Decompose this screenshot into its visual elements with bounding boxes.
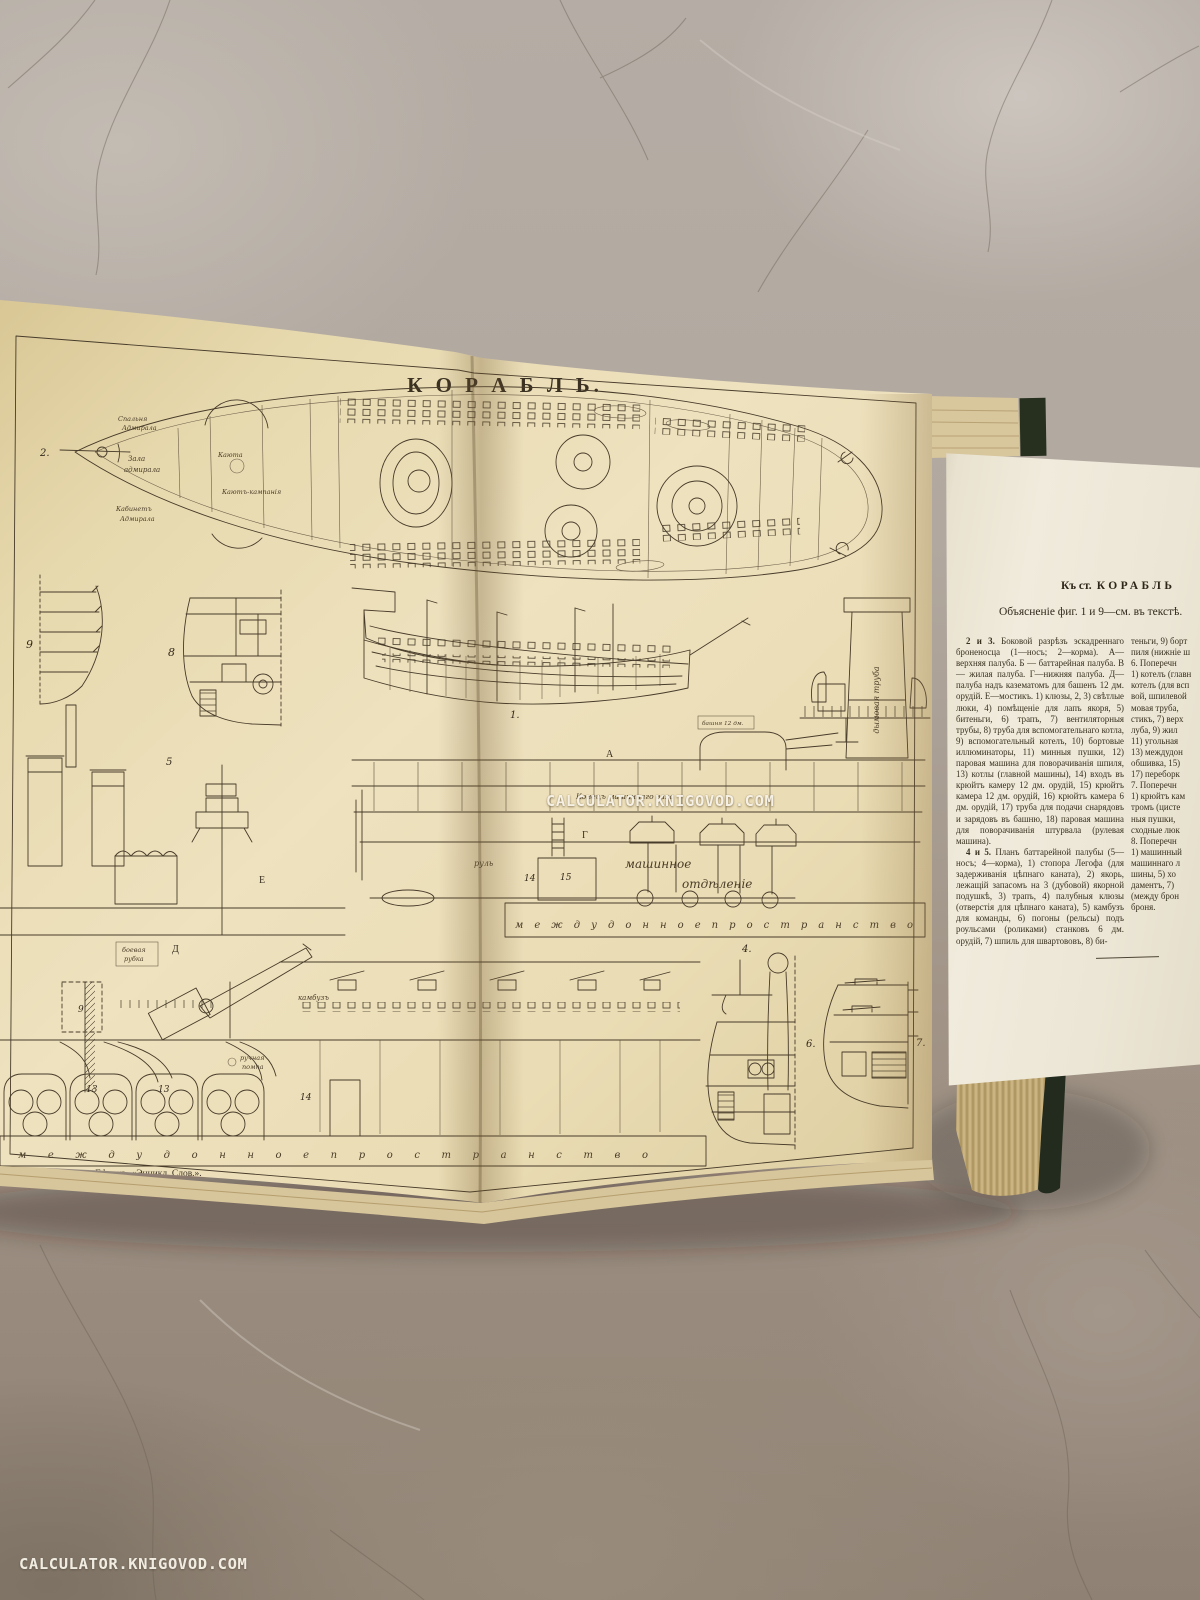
insert-column-2-line: пиля (нижніе ш bbox=[1131, 647, 1200, 658]
insert-column-2-line: 17) переборк bbox=[1131, 769, 1200, 780]
insert-column-2-line: 13) междудон bbox=[1131, 747, 1200, 758]
insert-column-2-line: 1) машинный bbox=[1131, 847, 1200, 858]
insert-column-2-line: вой, шпилевой bbox=[1131, 691, 1200, 702]
label-double-bottom-mid: м е ж д у д о н н о е п р о с т р а н с … bbox=[515, 920, 913, 931]
figure-label-6: 6. bbox=[806, 1039, 816, 1050]
watermark-bottom-left: CALCULATOR.KNIGOVOD.COM bbox=[19, 1555, 247, 1573]
label-turret: башня 12 дм. bbox=[702, 720, 744, 727]
page-stack-top bbox=[928, 396, 1020, 458]
label-deck-D: Д bbox=[172, 944, 179, 955]
figure-label-5: 5 bbox=[166, 757, 172, 768]
page-block-edge bbox=[956, 1070, 1048, 1196]
watermark-center: CALCULATOR.KNIGOVOD.COM bbox=[546, 792, 774, 810]
plate-right-shading bbox=[860, 394, 932, 1164]
insert-column-2-line: 6. Поперечн bbox=[1131, 658, 1200, 669]
insert-column-2-line: 11) угольная bbox=[1131, 736, 1200, 747]
insert-column-2-line: ныя пушки, bbox=[1131, 814, 1200, 825]
svg-text:рубка: рубка bbox=[124, 955, 144, 963]
label-pump: ручная bbox=[240, 1054, 264, 1062]
insert-column-2-line: 1) крюйтъ кам bbox=[1131, 791, 1200, 802]
insert-column-2-line: стикъ, 7) верх bbox=[1131, 714, 1200, 725]
insert-column-2-line: теньги, 9) борт bbox=[1131, 636, 1200, 647]
insert-paragraph: 4 и 5. Планъ баттарейной палубы (5—носъ;… bbox=[956, 847, 1124, 947]
label-conning: боевая bbox=[122, 946, 146, 954]
insert-divider-rule bbox=[1096, 956, 1159, 959]
insert-column-1: 2 и 3. Боковой разрѣзъ эскадреннаго брон… bbox=[956, 636, 1124, 947]
insert-paragraph: 2 и 3. Боковой разрѣзъ эскадреннаго брон… bbox=[956, 636, 1124, 847]
label-galley: камбузъ bbox=[298, 994, 329, 1002]
insert-column-2-line: шины, 5) хо bbox=[1131, 869, 1200, 880]
label-adm-cabinet: Кабинетъ bbox=[115, 505, 152, 513]
insert-page: Къ ст.КОРАБЛЬ Объясненіе фиг. 1 и 9—см. … bbox=[935, 440, 1200, 1100]
insert-subheader: Объясненіе фиг. 1 и 9—см. въ текстѣ. bbox=[999, 606, 1182, 618]
insert-column-2-line: мовая труба, bbox=[1131, 703, 1200, 714]
label-engine-room: машинное bbox=[625, 857, 691, 871]
insert-column-2-line: 1) котелъ (главн bbox=[1131, 669, 1200, 680]
label-13b: 13 bbox=[158, 1085, 170, 1095]
insert-column-2-line: тромъ (цисте bbox=[1131, 802, 1200, 813]
label-n9: 9 bbox=[78, 1005, 84, 1015]
photo-scene: К О Р А Б Л Ь. 2. bbox=[0, 0, 1200, 1600]
label-deck-G: Г bbox=[582, 830, 588, 841]
label-13a: 13 bbox=[86, 1085, 98, 1095]
label-wardroom: Каютъ-кампанія bbox=[221, 488, 281, 496]
svg-text:помпа: помпа bbox=[242, 1063, 264, 1071]
label-adm-hall: Зала bbox=[128, 455, 145, 463]
insert-column-2-line: броня. bbox=[1131, 902, 1200, 913]
insert-column-2-line: 8. Поперечн bbox=[1131, 836, 1200, 847]
figure-label-8: 8 bbox=[168, 646, 175, 659]
label-deck-A: А bbox=[606, 749, 614, 760]
insert-header-title: КОРАБЛЬ bbox=[1097, 580, 1176, 592]
label-adm-bedroom: Спальня bbox=[118, 415, 147, 423]
insert-column-2-line: луба, 9) жил bbox=[1131, 725, 1200, 736]
insert-column-2-line: 7. Поперечн bbox=[1131, 780, 1200, 791]
svg-text:Адмирала: Адмирала bbox=[121, 424, 157, 432]
figure-label-2: 2. bbox=[39, 448, 50, 459]
insert-column-2-line: сходные люк bbox=[1131, 825, 1200, 836]
label-14: 14 bbox=[524, 874, 536, 884]
svg-text:Адмирала: Адмирала bbox=[119, 515, 155, 523]
insert-column-2-line: машиннаго л bbox=[1131, 858, 1200, 869]
insert-header-prefix: Къ ст. bbox=[1061, 580, 1092, 592]
label-15: 15 bbox=[560, 873, 572, 883]
insert-column-2-line: (между брон bbox=[1131, 891, 1200, 902]
svg-text:отдѣленіе: отдѣленіе bbox=[682, 877, 752, 891]
book-cover-top-edge bbox=[1019, 398, 1046, 456]
insert-column-2-line: котелъ (для всп bbox=[1131, 680, 1200, 691]
figure-label-4: 4. bbox=[741, 944, 752, 955]
label-cabin: Каюта bbox=[217, 451, 243, 459]
svg-text:адмирала: адмирала bbox=[124, 466, 160, 474]
insert-column-2-line: обшивка, 15) bbox=[1131, 758, 1200, 769]
insert-column-2-line: даментъ, 7) bbox=[1131, 880, 1200, 891]
figure-label-9: 9 bbox=[26, 638, 33, 651]
label-deck-E: Е bbox=[259, 875, 265, 886]
label-14b: 14 bbox=[300, 1093, 312, 1103]
insert-header: Къ ст.КОРАБЛЬ bbox=[1061, 580, 1176, 592]
insert-column-2: теньги, 9) бортпиля (нижніе ш6. Поперечн… bbox=[1131, 636, 1200, 913]
